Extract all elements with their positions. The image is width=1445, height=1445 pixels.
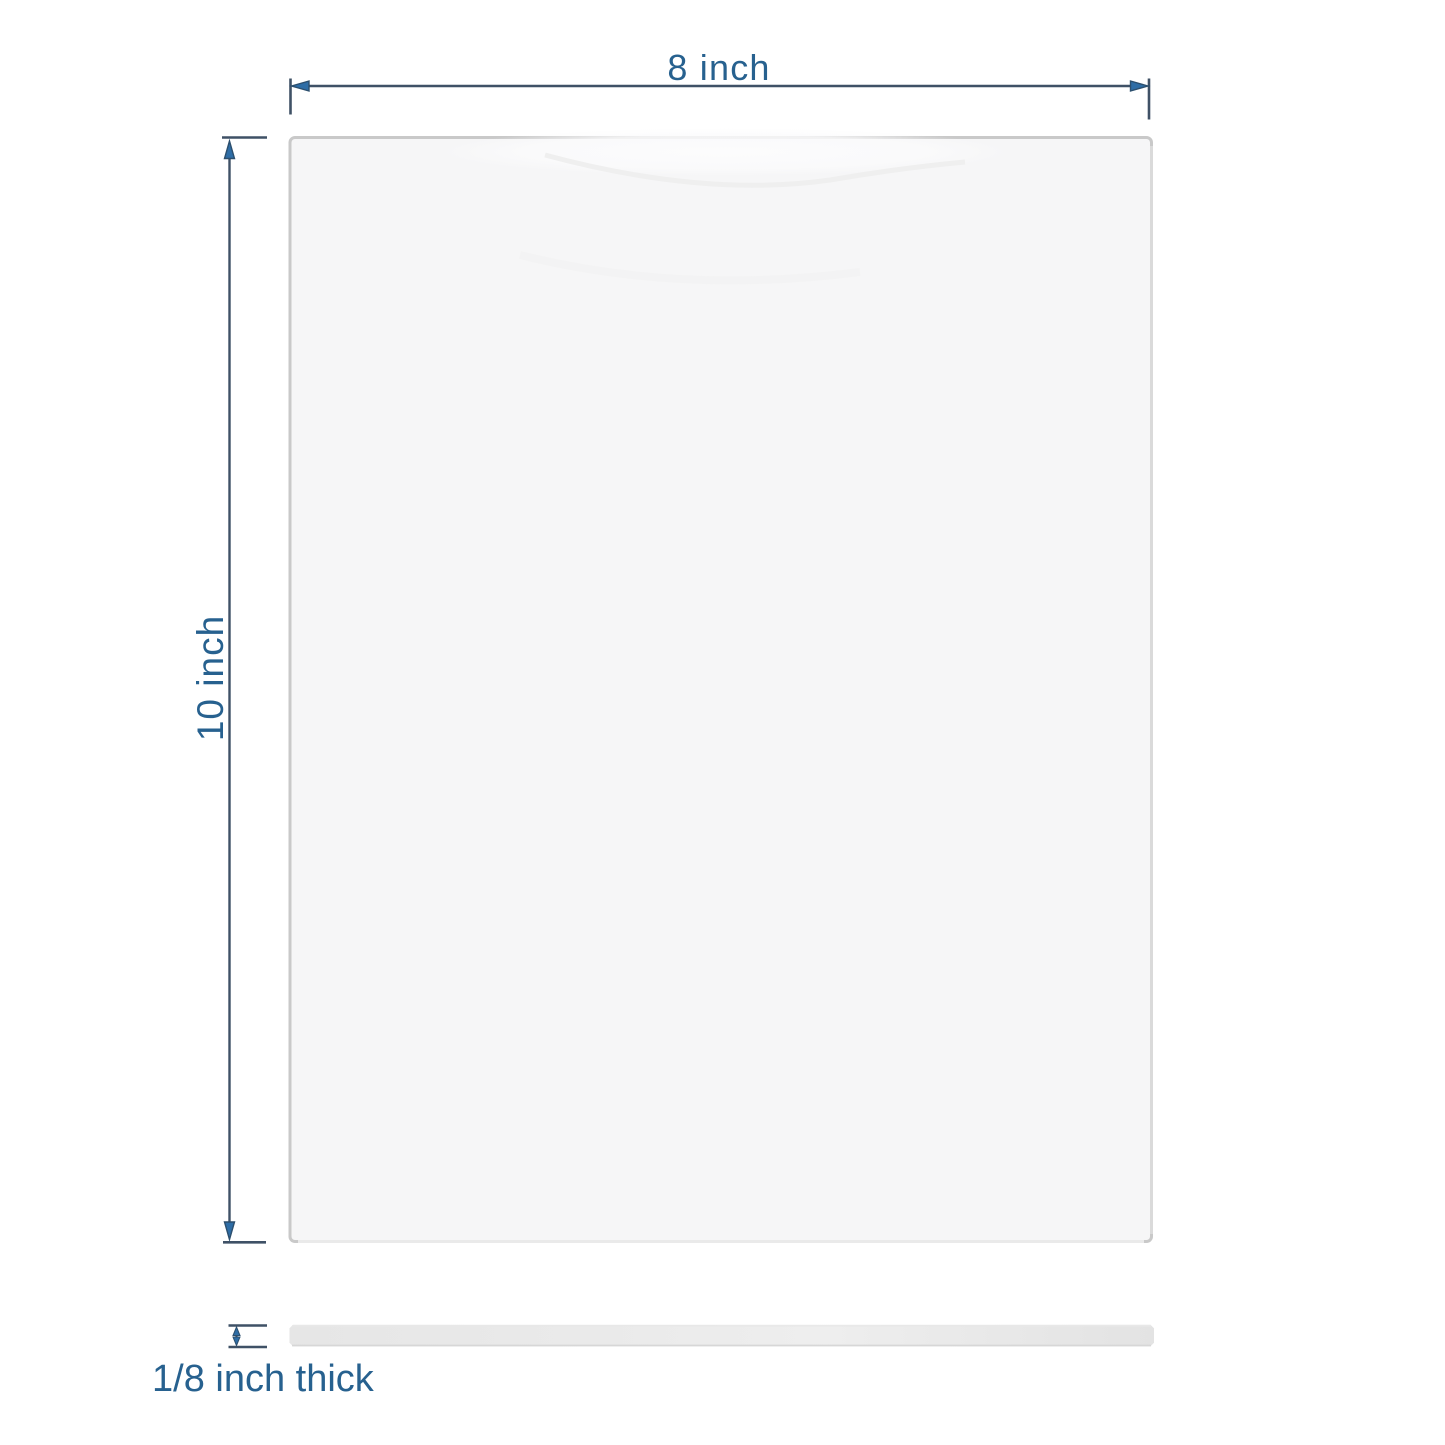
svg-text:8 inch: 8 inch	[667, 47, 770, 88]
svg-text:10 inch: 10 inch	[190, 615, 231, 741]
svg-text:1/8 inch thick: 1/8 inch thick	[152, 1358, 375, 1400]
